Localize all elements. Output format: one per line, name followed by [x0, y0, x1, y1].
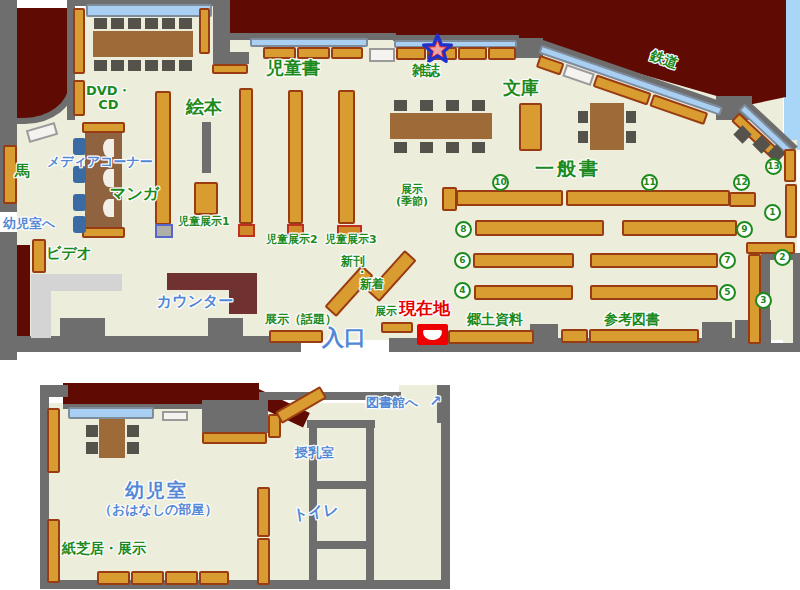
chair [472, 100, 485, 111]
bookshelf [212, 64, 248, 74]
chair [626, 131, 636, 143]
chair [73, 216, 86, 233]
shelf-number-4: 4 [454, 282, 471, 299]
bookshelf [155, 91, 171, 225]
chair [145, 60, 158, 71]
bookshelf-6 [473, 253, 574, 268]
label-entrance: 入口 [322, 326, 366, 349]
label-kids-display-1: 児童展示1 [178, 216, 230, 228]
label-bunko: 文庫 [503, 79, 539, 98]
chair [111, 60, 124, 71]
wall [0, 232, 17, 360]
label-picture-books: 絵本 [186, 98, 222, 117]
local-materials-shelf [448, 330, 534, 344]
shelf-number-3: 3 [755, 292, 772, 309]
display-shelf [269, 330, 323, 343]
display-case [369, 48, 395, 62]
label-local-materials: 郷土資料 [467, 312, 523, 327]
display-stand [238, 224, 255, 237]
chair [394, 100, 407, 111]
magazine-shelf [488, 47, 516, 60]
library-floor-map: 1 2 3 4 5 6 7 8 9 10 11 12 13 児童書 雑誌 文庫 … [0, 0, 800, 590]
chair [94, 60, 107, 71]
current-location-glyph [423, 330, 442, 340]
shelf-number-9: 9 [736, 221, 753, 238]
reference-shelf [561, 329, 588, 343]
chair [86, 442, 98, 454]
bookshelf-5 [590, 285, 718, 300]
bookshelf [257, 487, 270, 537]
chair [127, 442, 139, 454]
chair [128, 60, 141, 71]
label-kids-display-2: 児童展示2 [266, 234, 318, 246]
wall [793, 253, 800, 350]
chair [162, 60, 175, 71]
chair [626, 111, 636, 123]
chair [86, 425, 98, 437]
bookshelf [239, 88, 253, 224]
current-location-marker [417, 324, 448, 345]
staff-area [31, 274, 51, 338]
arrow-up-right-icon: ↗ [429, 394, 442, 410]
chair [111, 18, 124, 29]
chair [578, 131, 588, 143]
bookshelf [47, 519, 60, 583]
label-magazines: 雑誌 [412, 63, 440, 78]
wall-pillar [60, 318, 105, 338]
reading-table [390, 113, 492, 139]
shelf-number-13: 13 [765, 158, 782, 175]
window [86, 4, 212, 17]
label-childrens-books: 児童書 [266, 59, 320, 78]
bookshelf-13 [784, 149, 796, 182]
bookshelf [73, 8, 85, 74]
label-horse: 馬 [15, 164, 30, 180]
shelf-number-5: 5 [719, 284, 736, 301]
reading-table [99, 419, 125, 458]
bookshelf [199, 8, 210, 54]
label-media-corner: メディアコーナー [47, 155, 153, 169]
chair [179, 60, 192, 71]
shelf-number-6: 6 [454, 252, 471, 269]
video-shelf [32, 239, 46, 273]
media-shelf [82, 122, 125, 133]
label-display: 展示 [375, 306, 397, 318]
label-dvd-cd: DVD・ CD [86, 84, 131, 111]
wall [309, 481, 374, 489]
bookshelf [331, 47, 363, 59]
label-display-seasonal: 展示 (季節) [396, 184, 428, 207]
bookshelf [47, 408, 60, 473]
wall [213, 0, 230, 54]
shelf-number-7: 7 [719, 252, 736, 269]
chair [162, 18, 175, 29]
bookshelf [288, 90, 303, 224]
label-video: ビデオ [46, 246, 92, 262]
shelf-number-10: 10 [492, 174, 509, 191]
wall-pillar [702, 322, 732, 339]
label-to-kids-room: 幼児室へ [3, 217, 55, 231]
wall [213, 52, 249, 64]
display-stand [155, 224, 173, 238]
seasonal-display-shelf [442, 187, 457, 211]
bookshelf [131, 571, 164, 585]
reference-shelf [589, 329, 699, 343]
label-display-topics: 展示（話題） [265, 313, 337, 326]
outside-wall-area [16, 245, 30, 345]
stairwell-block [202, 400, 268, 433]
chair [446, 142, 459, 153]
chair [73, 194, 86, 211]
chair [179, 18, 192, 29]
display-case [162, 411, 188, 421]
reading-table [590, 103, 624, 150]
bookshelf-9 [622, 220, 737, 236]
bookshelf-7 [590, 253, 718, 268]
bookshelf [519, 103, 542, 151]
wall [309, 541, 374, 549]
chair [128, 18, 141, 29]
shelf-number-8: 8 [455, 221, 472, 238]
wall [441, 420, 450, 585]
label-to-library: 図書館へ [366, 396, 418, 410]
label-kids-room: 幼児室 [125, 481, 188, 501]
wall [366, 421, 374, 581]
label-kamishibai-display: 紙芝居・展示 [62, 541, 146, 556]
label-nursing-room: 授乳室 [295, 446, 334, 460]
bookshelf [338, 90, 355, 224]
outside-sky [784, 0, 800, 150]
chair [94, 18, 107, 29]
label-general-books: 一般書 [535, 159, 601, 179]
label-counter: カウンター [157, 294, 233, 310]
chair [420, 142, 433, 153]
label-new-arrivals: 新着 [360, 278, 384, 291]
wall [307, 420, 375, 428]
bookshelf-1 [785, 184, 797, 238]
reading-table [143, 31, 193, 57]
reading-table [93, 31, 143, 57]
shelf-number-11: 11 [641, 174, 658, 191]
bookshelf [73, 80, 85, 116]
display-shelf [381, 322, 413, 333]
chair [145, 18, 158, 29]
window [68, 407, 154, 419]
label-reference-books: 参考図書 [604, 312, 660, 327]
bookshelf [165, 571, 198, 585]
bookshelf-11 [566, 190, 730, 206]
bookshelf-12 [729, 192, 756, 207]
bookshelf-10 [456, 190, 563, 206]
display-shelf [194, 182, 218, 215]
chair [420, 100, 433, 111]
bookshelf [202, 432, 267, 444]
wall-pillar [530, 324, 558, 338]
media-shelf [82, 227, 125, 238]
outside-wall-area [17, 8, 69, 118]
wall-pillar [208, 318, 243, 338]
bookshelf [97, 571, 130, 585]
chair [578, 111, 588, 123]
chair [472, 142, 485, 153]
bookshelf [257, 538, 270, 585]
wall [17, 336, 301, 352]
label-storytelling-room: （おはなしの部屋） [99, 503, 218, 517]
label-kids-display-3: 児童展示3 [325, 234, 377, 246]
bookshelf [199, 571, 229, 585]
bookshelf-8 [475, 220, 604, 236]
chair [446, 100, 459, 111]
wall [761, 343, 800, 352]
wall-pillar [202, 122, 211, 173]
window [250, 38, 368, 47]
shelf-number-1: 1 [764, 204, 781, 221]
chair [127, 425, 139, 437]
bookshelf-4 [474, 285, 573, 300]
shelf-number-2: 2 [774, 249, 791, 266]
chair [73, 138, 86, 155]
chair [394, 142, 407, 153]
label-manga: マンガ [110, 186, 159, 203]
magazine-shelf [458, 47, 487, 60]
label-current-location: 現在地 [399, 300, 450, 318]
shelf-number-12: 12 [733, 174, 750, 191]
